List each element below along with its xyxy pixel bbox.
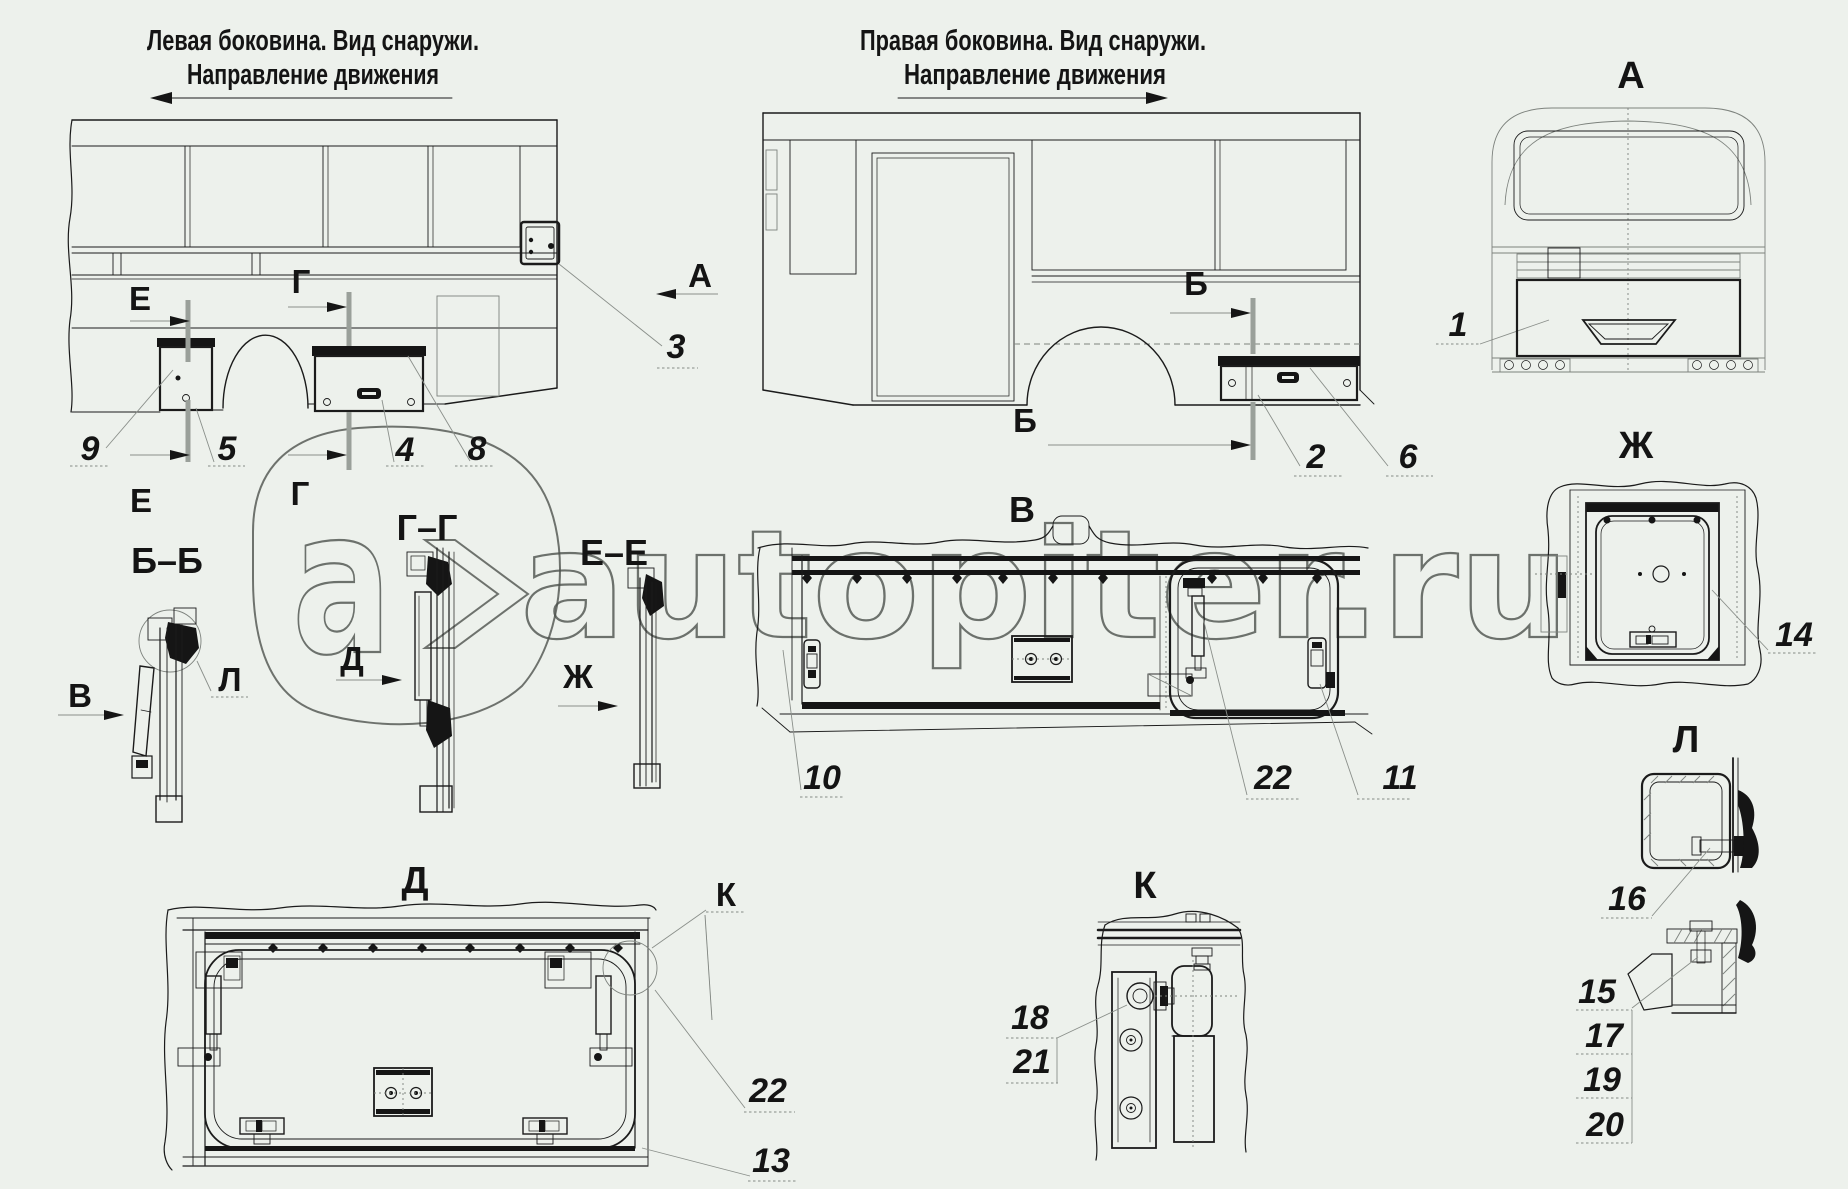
diagram-canvas: a autopiter.ru Левая боковина. Вид снару…	[0, 0, 1848, 1189]
view-k-title: К	[1133, 865, 1157, 907]
svg-text:5: 5	[218, 430, 238, 468]
marker-b-top-label: Б	[1184, 265, 1208, 302]
l-square-tube-16	[1642, 774, 1730, 868]
view-d: Д	[164, 860, 796, 1181]
svg-text:17: 17	[1585, 1017, 1625, 1055]
callout-2: 2	[1258, 395, 1342, 476]
zh-hatch-14	[1586, 503, 1719, 660]
callout-15: 15	[1576, 957, 1698, 1011]
svg-text:20: 20	[1585, 1106, 1624, 1144]
view-marker-a: А	[656, 257, 718, 299]
marker-e-bottom-label: Е	[130, 482, 152, 519]
view-v-title: В	[1009, 489, 1035, 530]
hatch-right-2-6	[1218, 356, 1360, 400]
callout-20: 20	[1576, 1106, 1632, 1144]
callout-21: 21	[1006, 1038, 1058, 1083]
view-marker-v: В	[58, 677, 124, 720]
svg-text:10: 10	[803, 759, 841, 797]
section-gg-title: Г–Г	[397, 507, 458, 548]
callout-11: 11	[1320, 684, 1418, 799]
callout-9: 9	[70, 370, 173, 468]
section-ee-title: Е–Е	[580, 532, 648, 573]
callout-3: 3	[559, 264, 698, 368]
l-bolt-horizontal	[1692, 836, 1744, 856]
view-l: Л	[1576, 719, 1759, 1144]
k-bracket-plate	[1112, 972, 1156, 1148]
left-title-line1: Левая боковина. Вид снаружи.	[147, 25, 479, 57]
right-wheel-arch	[1027, 327, 1175, 405]
detail-marker-k: К	[652, 876, 744, 948]
callout-14: 14	[1712, 590, 1818, 654]
marker-e-top-label: Е	[129, 280, 151, 317]
svg-text:18: 18	[1011, 999, 1049, 1037]
left-side-view-drawing: Е Е Г Г 9 5	[68, 120, 718, 519]
rear-lights-right	[1688, 359, 1758, 372]
right-direction-arrow	[898, 92, 1168, 104]
left-wheel-arch	[223, 335, 308, 408]
svg-text:6: 6	[1399, 438, 1419, 476]
svg-text:16: 16	[1608, 880, 1647, 918]
svg-text:22: 22	[748, 1072, 787, 1110]
view-a-title: А	[1617, 55, 1644, 97]
watermark: a autopiter.ru	[253, 427, 1570, 725]
callout-17: 17	[1576, 1017, 1632, 1055]
section-bb: Б–Б В Л	[58, 540, 248, 822]
svg-text:14: 14	[1775, 616, 1813, 654]
section-bb-title: Б–Б	[131, 540, 203, 581]
callout-5: 5	[196, 408, 245, 468]
watermark-text: autopiter.ru	[520, 499, 1570, 673]
l-web-bracket	[1672, 943, 1736, 1013]
view-zh: Ж 14	[1535, 425, 1818, 686]
svg-text:4: 4	[395, 431, 415, 469]
svg-text:11: 11	[1382, 759, 1417, 797]
callout-1: 1	[1436, 306, 1549, 344]
callout-16: 16	[1601, 848, 1710, 918]
svg-text:3: 3	[667, 328, 686, 366]
watermark-logo-chevron	[425, 540, 528, 648]
svg-text:19: 19	[1583, 1061, 1621, 1099]
right-side-view-drawing: Б Б 2 6 1	[763, 113, 1549, 476]
detail-marker-l: Л	[197, 661, 248, 698]
marker-v-label: В	[68, 677, 92, 714]
d-rail-bolts	[268, 943, 623, 953]
callout-13: 13	[642, 1142, 796, 1181]
svg-text:1: 1	[1449, 306, 1468, 344]
view-zh-title: Ж	[1618, 425, 1654, 467]
svg-text:21: 21	[1012, 1043, 1051, 1081]
left-direction-arrow	[150, 92, 452, 104]
hatch-large-left	[312, 346, 426, 411]
callout-19: 19	[1576, 1061, 1632, 1099]
marker-k-label: К	[716, 876, 737, 913]
rear-view-a: А	[1492, 55, 1765, 372]
hatch-door-3	[521, 222, 559, 264]
d-gas-spring-left	[178, 952, 242, 1066]
left-title-line2: Направление движения	[187, 59, 439, 91]
marker-a-label: А	[688, 257, 712, 294]
rear-hatch-1	[1517, 280, 1740, 356]
svg-text:8: 8	[468, 430, 487, 468]
d-latch-left	[240, 1118, 284, 1144]
rear-lights-left	[1500, 359, 1570, 372]
callout-22-d: 22	[655, 990, 795, 1112]
marker-g-bottom-label: Г	[291, 475, 310, 512]
section-marker-b: Б Б	[1013, 265, 1253, 460]
view-l-title: Л	[1673, 719, 1700, 761]
marker-d-label: Д	[340, 640, 364, 677]
marker-g-top-label: Г	[292, 263, 311, 300]
left-title: Левая боковина. Вид снаружи. Направление…	[147, 25, 479, 104]
technical-diagram-svg: a autopiter.ru Левая боковина. Вид снару…	[0, 0, 1848, 1189]
view-d-title: Д	[401, 860, 428, 902]
d-gas-spring-right	[545, 941, 657, 1066]
svg-text:2: 2	[1306, 438, 1326, 476]
view-k: К	[1006, 865, 1247, 1160]
svg-text:9: 9	[81, 430, 100, 468]
d-striker-plate	[374, 1068, 432, 1116]
svg-text:22: 22	[1253, 759, 1292, 797]
right-title-line2: Направление движения	[904, 59, 1166, 91]
right-title-line1: Правая боковина. Вид снаружи.	[860, 25, 1206, 57]
d-latch-right	[523, 1118, 567, 1144]
callout-6: 6	[1310, 368, 1433, 476]
l-bolt-vertical-15	[1690, 921, 1712, 963]
svg-text:15: 15	[1578, 973, 1617, 1011]
marker-zh-label: Ж	[562, 658, 593, 695]
svg-text:13: 13	[752, 1142, 790, 1180]
callout-18: 18	[1006, 999, 1127, 1038]
marker-l-label: Л	[218, 661, 241, 698]
right-title: Правая боковина. Вид снаружи. Направлени…	[860, 25, 1206, 104]
marker-b-bottom-label: Б	[1013, 402, 1037, 439]
